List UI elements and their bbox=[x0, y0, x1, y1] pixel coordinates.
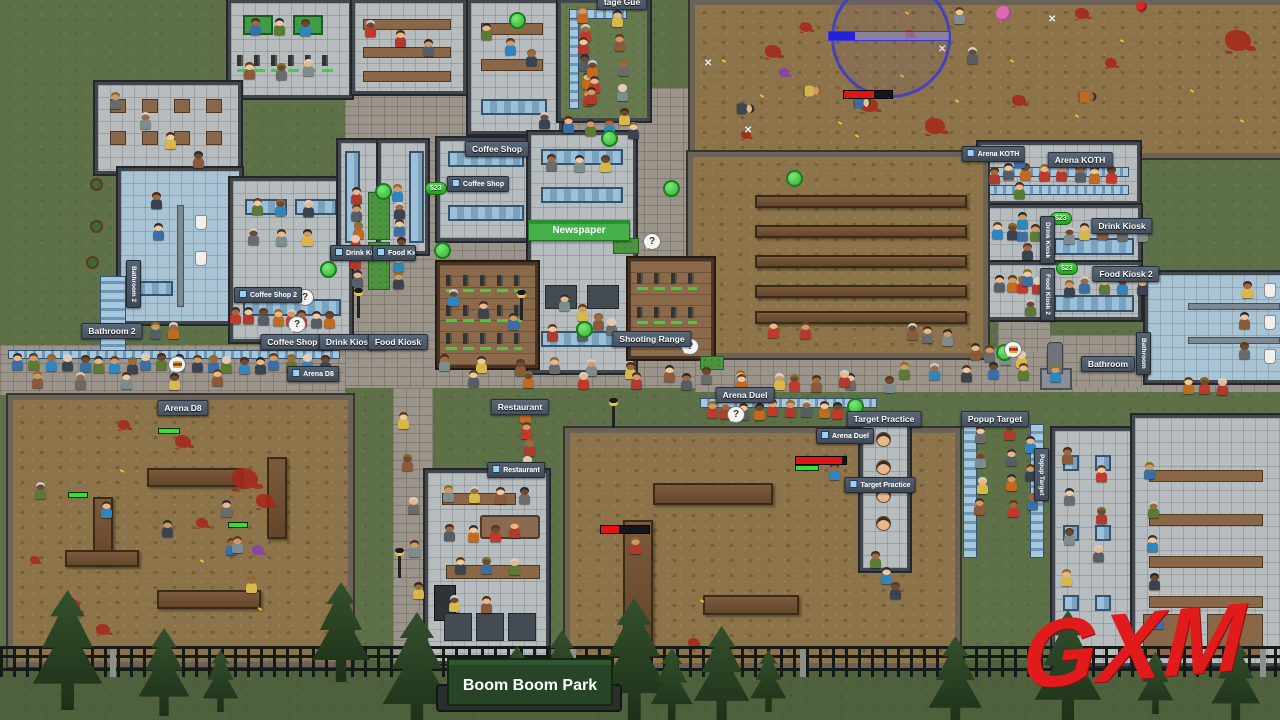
person[interactable] bbox=[395, 37, 406, 47]
banner-drink-kiosk[interactable]: Drink Kiosk bbox=[1091, 218, 1152, 234]
person[interactable] bbox=[829, 470, 840, 480]
person[interactable] bbox=[392, 191, 403, 201]
blood-splat bbox=[765, 45, 781, 58]
person[interactable] bbox=[393, 279, 404, 289]
person[interactable] bbox=[423, 46, 434, 56]
qsign-drink-kiosk[interactable]: Drink Kiosk bbox=[1040, 216, 1055, 264]
status-bubble-icon bbox=[786, 170, 803, 187]
banner-arena-d8[interactable]: Arena D8 bbox=[157, 400, 208, 416]
person[interactable] bbox=[1239, 349, 1250, 359]
lamp-post bbox=[520, 298, 523, 320]
person[interactable] bbox=[258, 315, 269, 325]
question-bubble-icon: ? bbox=[727, 406, 745, 423]
person[interactable] bbox=[549, 364, 560, 374]
qsign-target-practice[interactable]: Target Practice bbox=[844, 477, 915, 493]
person[interactable] bbox=[563, 123, 574, 133]
person[interactable] bbox=[156, 360, 167, 370]
banner-coffee-shop[interactable]: Coffee Shop bbox=[465, 141, 529, 157]
person[interactable] bbox=[585, 126, 596, 136]
person[interactable] bbox=[1017, 231, 1028, 241]
person[interactable] bbox=[1099, 284, 1110, 294]
person[interactable] bbox=[521, 429, 532, 439]
person[interactable] bbox=[1137, 285, 1148, 295]
person[interactable] bbox=[351, 211, 362, 221]
person[interactable] bbox=[618, 66, 629, 76]
balloon bbox=[1136, 1, 1147, 12]
person[interactable] bbox=[899, 369, 910, 379]
person[interactable] bbox=[614, 41, 625, 51]
person[interactable] bbox=[32, 378, 43, 388]
person[interactable] bbox=[509, 528, 520, 538]
person[interactable] bbox=[984, 352, 995, 362]
person[interactable] bbox=[1183, 384, 1194, 394]
person[interactable] bbox=[1075, 172, 1086, 182]
person[interactable] bbox=[193, 158, 204, 168]
person[interactable] bbox=[619, 115, 630, 125]
status-bubble-icon bbox=[509, 12, 526, 29]
person[interactable] bbox=[907, 330, 918, 340]
person[interactable] bbox=[1050, 372, 1061, 382]
banner-partial-top[interactable]: tage Gue bbox=[597, 0, 647, 10]
person[interactable] bbox=[701, 374, 712, 384]
person[interactable] bbox=[1022, 250, 1033, 260]
person[interactable] bbox=[481, 30, 492, 40]
qsign-food-kiosk-2[interactable]: Food Kiosk 2 bbox=[1040, 268, 1055, 321]
person[interactable] bbox=[140, 360, 151, 370]
person[interactable] bbox=[988, 369, 999, 379]
qsign-coffee-shop[interactable]: Coffee Shop bbox=[447, 176, 509, 192]
person[interactable] bbox=[276, 236, 287, 246]
arena-center-field[interactable] bbox=[688, 152, 988, 358]
person[interactable] bbox=[162, 527, 173, 537]
person[interactable] bbox=[929, 370, 940, 380]
person[interactable] bbox=[1056, 171, 1067, 181]
planter bbox=[86, 256, 99, 269]
person[interactable] bbox=[439, 361, 450, 371]
banner-arena-duel[interactable]: Arena Duel bbox=[716, 387, 775, 403]
person[interactable] bbox=[101, 508, 112, 518]
person[interactable] bbox=[150, 329, 161, 339]
person[interactable] bbox=[975, 433, 986, 443]
popup-target-face[interactable] bbox=[876, 432, 891, 447]
watermark: GXM bbox=[1020, 582, 1250, 713]
qsign-arena-duel[interactable]: Arena Duel bbox=[816, 428, 874, 444]
person[interactable] bbox=[248, 235, 259, 245]
x-marker: ✕ bbox=[744, 125, 752, 136]
banner-bathroom-2[interactable]: Bathroom 2 bbox=[81, 323, 142, 339]
game-viewport[interactable]: tage Gue Arena KOTH Arena KOTH Drink Kio… bbox=[0, 0, 1280, 720]
person[interactable] bbox=[547, 331, 558, 341]
person[interactable] bbox=[1148, 508, 1159, 518]
person[interactable] bbox=[393, 262, 404, 272]
popup-rail-left bbox=[963, 424, 977, 558]
person[interactable] bbox=[854, 97, 864, 108]
person[interactable] bbox=[890, 589, 901, 599]
x-marker: ✕ bbox=[704, 58, 712, 69]
person[interactable] bbox=[1079, 91, 1089, 102]
person[interactable] bbox=[681, 380, 692, 390]
person[interactable] bbox=[169, 380, 180, 390]
person[interactable] bbox=[974, 505, 985, 515]
person[interactable] bbox=[443, 492, 454, 502]
person[interactable] bbox=[1089, 173, 1100, 183]
person[interactable] bbox=[785, 407, 796, 417]
qsign-bathroom[interactable]: Bathroom bbox=[1136, 332, 1151, 375]
person[interactable] bbox=[1018, 370, 1029, 380]
person[interactable] bbox=[954, 14, 965, 24]
lamp-post bbox=[357, 296, 360, 318]
popup-target-face[interactable] bbox=[876, 460, 891, 475]
person[interactable] bbox=[239, 364, 250, 374]
qsign-popup-target[interactable]: Popup Target bbox=[1034, 448, 1049, 501]
person[interactable] bbox=[612, 17, 623, 27]
person[interactable] bbox=[394, 226, 405, 236]
person[interactable] bbox=[109, 363, 120, 373]
person[interactable] bbox=[1062, 454, 1073, 464]
blood-splat bbox=[175, 435, 191, 448]
person[interactable] bbox=[303, 66, 314, 76]
person[interactable] bbox=[250, 25, 261, 35]
health-bar bbox=[795, 456, 847, 465]
person[interactable] bbox=[1106, 173, 1117, 183]
person[interactable] bbox=[1017, 219, 1028, 229]
sign-newspaper[interactable]: Newspaper bbox=[528, 220, 630, 241]
stamina-bar bbox=[795, 465, 819, 471]
person[interactable] bbox=[221, 363, 232, 373]
money-popup: $23 bbox=[1056, 262, 1078, 275]
person[interactable] bbox=[961, 372, 972, 382]
queue-icon bbox=[335, 248, 343, 256]
person[interactable] bbox=[578, 44, 589, 54]
person[interactable] bbox=[1006, 456, 1017, 466]
person[interactable] bbox=[455, 564, 466, 574]
person[interactable] bbox=[804, 85, 814, 96]
person[interactable] bbox=[230, 314, 241, 324]
blood-splat bbox=[1105, 58, 1117, 68]
person[interactable] bbox=[600, 162, 611, 172]
person[interactable] bbox=[324, 318, 335, 328]
qsign-restaurant[interactable]: Restaurant bbox=[487, 462, 545, 478]
banner-food-kiosk-2[interactable]: Food Kiosk 2 bbox=[1092, 266, 1159, 282]
person[interactable] bbox=[707, 408, 718, 418]
person[interactable] bbox=[881, 574, 892, 584]
person[interactable] bbox=[300, 26, 311, 36]
person[interactable] bbox=[243, 314, 254, 324]
person[interactable] bbox=[505, 45, 516, 55]
status-bubble-icon bbox=[601, 130, 618, 147]
person[interactable] bbox=[524, 446, 535, 456]
person[interactable] bbox=[1149, 580, 1160, 590]
banner-arena-koth[interactable]: Arena KOTH bbox=[1048, 152, 1113, 168]
person[interactable] bbox=[303, 207, 314, 217]
queue-icon bbox=[821, 431, 829, 439]
person[interactable] bbox=[1147, 542, 1158, 552]
person[interactable] bbox=[490, 532, 501, 542]
person[interactable] bbox=[275, 206, 286, 216]
person[interactable] bbox=[165, 139, 176, 149]
person[interactable] bbox=[577, 311, 588, 321]
qsign-food-kiosk[interactable]: Food Kiosk bbox=[372, 245, 416, 261]
person[interactable] bbox=[93, 363, 104, 373]
person[interactable] bbox=[1064, 287, 1075, 297]
person[interactable] bbox=[1144, 469, 1155, 479]
person[interactable] bbox=[192, 362, 203, 372]
status-bubble-icon bbox=[434, 242, 451, 259]
person[interactable] bbox=[311, 318, 322, 328]
person[interactable] bbox=[1064, 234, 1075, 244]
room-bathroom-right[interactable] bbox=[1145, 272, 1280, 383]
person[interactable] bbox=[870, 558, 881, 568]
stamina-bar bbox=[68, 492, 88, 498]
person[interactable] bbox=[977, 484, 988, 494]
room-tables-top[interactable] bbox=[352, 0, 466, 94]
person[interactable] bbox=[1025, 306, 1036, 316]
person[interactable] bbox=[444, 531, 455, 541]
person[interactable] bbox=[1020, 170, 1031, 180]
person[interactable] bbox=[509, 565, 520, 575]
food-thought-bubble-icon bbox=[168, 356, 186, 373]
banner-popup-target[interactable]: Popup Target bbox=[961, 411, 1029, 427]
money-popup: $23 bbox=[425, 182, 447, 195]
person[interactable] bbox=[942, 336, 953, 346]
status-bubble-icon bbox=[375, 183, 392, 200]
banner-restaurant[interactable]: Restaurant bbox=[491, 399, 549, 415]
person[interactable] bbox=[559, 301, 570, 311]
person[interactable] bbox=[402, 461, 413, 471]
planter bbox=[90, 220, 103, 233]
person[interactable] bbox=[1027, 500, 1038, 510]
lamp-post bbox=[612, 406, 615, 428]
queue-icon bbox=[452, 179, 460, 187]
person[interactable] bbox=[519, 494, 530, 504]
person[interactable] bbox=[221, 507, 232, 517]
person[interactable] bbox=[351, 194, 362, 204]
person[interactable] bbox=[754, 410, 765, 420]
x-marker: ✕ bbox=[1048, 14, 1056, 25]
blood-splat bbox=[1012, 95, 1026, 106]
person[interactable] bbox=[151, 199, 162, 209]
person[interactable] bbox=[922, 333, 933, 343]
person[interactable] bbox=[110, 99, 121, 109]
person[interactable] bbox=[365, 27, 376, 37]
room-gun-tables[interactable] bbox=[228, 0, 352, 98]
person[interactable] bbox=[1061, 576, 1072, 586]
health-bar bbox=[600, 525, 650, 534]
person[interactable] bbox=[244, 69, 255, 79]
person[interactable] bbox=[1239, 319, 1250, 329]
person[interactable] bbox=[468, 532, 479, 542]
person[interactable] bbox=[46, 361, 57, 371]
person[interactable] bbox=[394, 209, 405, 219]
banner-target-practice[interactable]: Target Practice bbox=[847, 411, 922, 427]
blood-splat bbox=[196, 518, 208, 528]
person[interactable] bbox=[801, 407, 812, 417]
person[interactable] bbox=[481, 564, 492, 574]
queue-icon bbox=[377, 248, 385, 256]
person[interactable] bbox=[1006, 481, 1017, 491]
person[interactable] bbox=[495, 494, 506, 504]
person[interactable] bbox=[255, 364, 266, 374]
status-bubble-icon bbox=[576, 321, 593, 338]
room-entrance-pen[interactable] bbox=[558, 0, 650, 121]
person[interactable] bbox=[578, 379, 589, 389]
person[interactable] bbox=[967, 54, 978, 64]
person[interactable] bbox=[409, 547, 420, 557]
person[interactable] bbox=[1022, 276, 1033, 286]
person[interactable] bbox=[1093, 552, 1104, 562]
person[interactable] bbox=[574, 162, 585, 172]
person[interactable] bbox=[1003, 170, 1014, 180]
person[interactable] bbox=[631, 379, 642, 389]
question-bubble-icon: ? bbox=[288, 316, 306, 333]
person[interactable] bbox=[1242, 288, 1253, 298]
stamina-bar bbox=[158, 428, 180, 434]
person[interactable] bbox=[819, 408, 830, 418]
blood-splat bbox=[96, 624, 110, 635]
blood-splat bbox=[256, 494, 274, 508]
person[interactable] bbox=[481, 603, 492, 613]
person[interactable] bbox=[789, 381, 800, 391]
person[interactable] bbox=[617, 91, 628, 101]
banner-shooting-range[interactable]: Shooting Range bbox=[612, 331, 691, 347]
person[interactable] bbox=[478, 308, 489, 318]
person[interactable] bbox=[212, 376, 223, 386]
person[interactable] bbox=[268, 360, 279, 370]
blood-splat bbox=[118, 420, 130, 430]
qsign-drink-kiosk-2[interactable]: Drink Kiosk bbox=[330, 245, 374, 261]
person[interactable] bbox=[526, 56, 537, 66]
person[interactable] bbox=[839, 377, 850, 387]
queue-icon bbox=[967, 149, 975, 157]
bathroom2-bench bbox=[100, 276, 126, 354]
person[interactable] bbox=[546, 161, 557, 171]
banner-bathroom[interactable]: Bathroom bbox=[1081, 356, 1135, 372]
person[interactable] bbox=[246, 583, 257, 593]
person[interactable] bbox=[62, 361, 73, 371]
person[interactable] bbox=[1117, 284, 1128, 294]
popup-target-face[interactable] bbox=[876, 516, 891, 531]
person[interactable] bbox=[884, 383, 895, 393]
queue-icon bbox=[849, 480, 857, 488]
person[interactable] bbox=[508, 320, 519, 330]
person[interactable] bbox=[630, 544, 641, 554]
person[interactable] bbox=[586, 94, 597, 104]
person[interactable] bbox=[1096, 472, 1107, 482]
blood-splat bbox=[925, 118, 945, 134]
person[interactable] bbox=[1096, 514, 1107, 524]
person[interactable] bbox=[168, 329, 179, 339]
stamina-bar bbox=[228, 522, 248, 528]
person[interactable] bbox=[469, 493, 480, 503]
person[interactable] bbox=[232, 543, 243, 553]
blood-splat bbox=[1075, 8, 1089, 19]
qsign-coffee-shop-2[interactable]: Coffee Shop 2 bbox=[234, 287, 302, 303]
person[interactable] bbox=[628, 129, 639, 139]
person[interactable] bbox=[811, 382, 822, 392]
person[interactable] bbox=[774, 380, 785, 390]
blood-splat bbox=[30, 556, 40, 564]
person[interactable] bbox=[352, 277, 363, 287]
qsign-arena-koth[interactable]: Arena KOTH bbox=[962, 146, 1025, 162]
queue-icon bbox=[492, 465, 500, 473]
person[interactable] bbox=[989, 174, 1000, 184]
park-sign[interactable]: Boom Boom Park bbox=[447, 658, 613, 706]
person[interactable] bbox=[800, 329, 811, 339]
person[interactable] bbox=[449, 602, 460, 612]
person[interactable] bbox=[1079, 230, 1090, 240]
person[interactable] bbox=[28, 360, 39, 370]
person[interactable] bbox=[577, 13, 588, 23]
person[interactable] bbox=[523, 378, 534, 388]
person[interactable] bbox=[121, 379, 132, 389]
person[interactable] bbox=[252, 205, 263, 215]
person[interactable] bbox=[970, 350, 981, 360]
person[interactable] bbox=[12, 360, 23, 370]
blood-splat bbox=[232, 468, 258, 489]
planter bbox=[90, 178, 103, 191]
balloon bbox=[996, 6, 1011, 21]
person[interactable] bbox=[1039, 171, 1050, 181]
person[interactable] bbox=[1199, 384, 1210, 394]
koth-progress-bar bbox=[828, 31, 950, 41]
person[interactable] bbox=[273, 316, 284, 326]
person[interactable] bbox=[1014, 189, 1025, 199]
person[interactable] bbox=[153, 230, 164, 240]
food-thought-bubble-icon bbox=[1004, 341, 1022, 358]
person[interactable] bbox=[1004, 430, 1015, 440]
person[interactable] bbox=[1217, 385, 1228, 395]
person[interactable] bbox=[1079, 283, 1090, 293]
person[interactable] bbox=[994, 282, 1005, 292]
person[interactable] bbox=[413, 589, 424, 599]
person[interactable] bbox=[1064, 495, 1075, 505]
banner-food-kiosk[interactable]: Food Kiosk bbox=[368, 334, 428, 350]
person[interactable] bbox=[1008, 507, 1019, 517]
arena-koth-field[interactable] bbox=[690, 0, 1280, 158]
queue-icon bbox=[239, 290, 247, 298]
person[interactable] bbox=[768, 328, 779, 338]
qsign-arena-d8[interactable]: Arena D8 bbox=[287, 366, 339, 382]
person[interactable] bbox=[276, 70, 287, 80]
person[interactable] bbox=[593, 320, 604, 330]
person[interactable] bbox=[408, 504, 419, 514]
person[interactable] bbox=[302, 236, 313, 246]
qsign-bathroom-2[interactable]: Bathroom 2 bbox=[126, 260, 141, 308]
blood-splat bbox=[1225, 30, 1251, 51]
status-bubble-icon bbox=[663, 180, 680, 197]
person[interactable] bbox=[832, 409, 843, 419]
person[interactable] bbox=[664, 372, 675, 382]
person[interactable] bbox=[767, 406, 778, 416]
person[interactable] bbox=[975, 458, 986, 468]
person[interactable] bbox=[992, 229, 1003, 239]
person[interactable] bbox=[737, 103, 747, 114]
person[interactable] bbox=[80, 362, 91, 372]
person[interactable] bbox=[539, 119, 550, 129]
blood-splat bbox=[252, 545, 264, 555]
person[interactable] bbox=[468, 377, 479, 387]
person[interactable] bbox=[1064, 535, 1075, 545]
status-bubble-icon bbox=[320, 261, 337, 278]
blood-splat bbox=[779, 68, 790, 77]
person[interactable] bbox=[398, 419, 409, 429]
question-bubble-icon: ? bbox=[643, 233, 661, 250]
person[interactable] bbox=[140, 119, 151, 129]
person[interactable] bbox=[274, 25, 285, 35]
person[interactable] bbox=[448, 296, 459, 306]
person[interactable] bbox=[35, 489, 46, 499]
person[interactable] bbox=[75, 379, 86, 389]
